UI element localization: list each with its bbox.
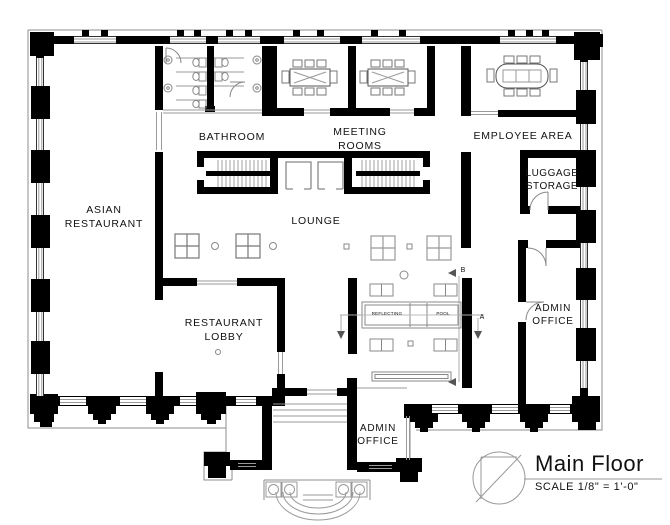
room-label-line: STORAGE: [522, 180, 582, 193]
room-label-line: OFFICE: [346, 435, 410, 448]
pool-label-line: POOL: [428, 312, 458, 317]
door-swing-icon: [166, 48, 181, 63]
room-label-line: BATHROOM: [172, 131, 292, 145]
section-arrow-icon: [448, 378, 456, 386]
room-label-asian-restaurant: ASIAN RESTAURANT: [44, 204, 164, 231]
section-letter: B: [457, 266, 469, 275]
door-swing-icon: [528, 248, 546, 266]
exterior-outline: [28, 30, 602, 500]
room-label-line: RESTAURANT: [44, 218, 164, 232]
lounge-table-icon: [175, 234, 451, 260]
room-label-line: OFFICE: [521, 315, 585, 328]
room-label-line: ADMIN: [521, 302, 585, 315]
bench-icon: [372, 372, 451, 381]
scale-symbol-lines-icon: [476, 455, 521, 502]
room-label-luggage-storage: LUGGAGE STORAGE: [522, 167, 582, 193]
room-label-line: EMPLOYEE AREA: [453, 130, 593, 144]
staircase-right-icon: [352, 158, 430, 194]
drawing-scale-note: SCALE 1/8" = 1'-0": [535, 481, 639, 493]
room-label-line: LOUNGE: [256, 215, 376, 229]
room-label-bathroom: BATHROOM: [172, 131, 292, 145]
pool-label-line: REFLECTING: [366, 312, 408, 317]
conference-table-icon: [282, 60, 337, 95]
room-label-line: RESTAURANT: [164, 317, 284, 331]
room-label-line: ADMIN: [346, 422, 410, 435]
elevator-bank-icon: [270, 158, 352, 194]
room-label-employee-area: EMPLOYEE AREA: [453, 130, 593, 144]
room-label-line: LUGGAGE: [522, 167, 582, 180]
drawing-title: Main Floor: [535, 451, 644, 477]
room-label-admin-office-south: ADMIN OFFICE: [346, 422, 410, 448]
exterior-walls: [30, 30, 603, 482]
floor-plan-drawing: [0, 0, 670, 525]
section-letter: A: [476, 313, 488, 322]
room-label-line: LOBBY: [164, 331, 284, 345]
door-swing-icon: [230, 82, 245, 97]
room-label-restaurant-lobby: RESTAURANT LOBBY: [164, 317, 284, 344]
pool-label-pool: POOL: [428, 312, 458, 317]
pool-benches: [370, 284, 457, 381]
room-label-line: ASIAN: [44, 204, 164, 218]
stair-elevator-core: [197, 151, 430, 194]
curved-steps-icon: [276, 492, 360, 520]
room-label-line: ROOMS: [300, 140, 420, 154]
conference-table-icon: [487, 56, 557, 96]
staircase-left-icon: [197, 158, 277, 194]
section-label-b: B: [457, 266, 469, 275]
room-label-line: MEETING: [300, 126, 420, 140]
room-label-lounge: LOUNGE: [256, 215, 376, 229]
section-arrow-icon: [448, 269, 456, 277]
section-label-a: A: [476, 313, 488, 322]
conference-table-icon: [360, 60, 415, 95]
section-arrow-icon: [337, 331, 345, 339]
floor-plan: ASIAN RESTAURANT BATHROOM MEETING ROOMS …: [0, 0, 670, 525]
section-arrow-icon: [474, 331, 482, 339]
pool-label-reflecting: REFLECTING: [366, 312, 408, 317]
toilet-icon: [193, 58, 206, 108]
door-swing-icon: [530, 192, 548, 210]
room-label-meeting-rooms: MEETING ROOMS: [300, 126, 420, 153]
room-label-admin-office-east: ADMIN OFFICE: [521, 302, 585, 328]
entry-steps-icon: [273, 404, 347, 422]
toilet-icon: [215, 58, 228, 81]
